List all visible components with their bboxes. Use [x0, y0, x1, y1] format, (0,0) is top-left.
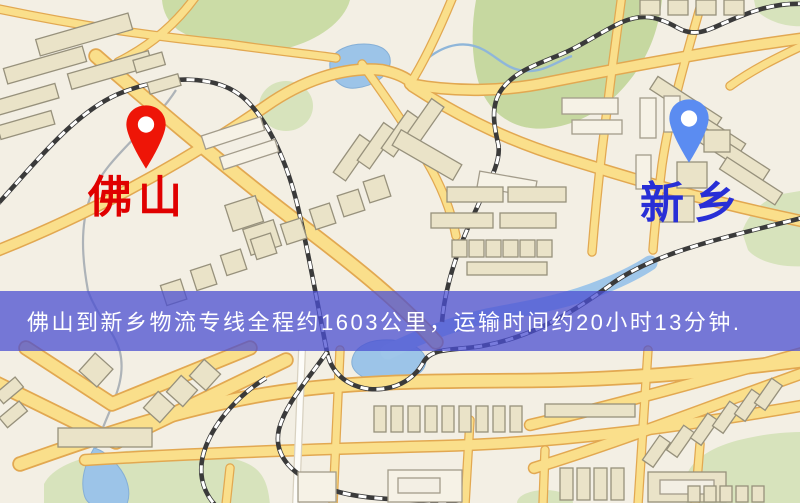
- destination-label: 新乡: [640, 182, 748, 226]
- map-screenshot: 佛山 新乡 佛山到新乡物流专线全程约1603公里，运输时间约20小时13分钟.: [0, 0, 800, 503]
- destination-pin-icon[interactable]: [666, 96, 712, 166]
- origin-pin-icon[interactable]: [123, 102, 169, 172]
- route-info-banner: 佛山到新乡物流专线全程约1603公里，运输时间约20小时13分钟.: [0, 291, 800, 351]
- map-canvas[interactable]: [0, 0, 800, 503]
- pin-hole: [681, 110, 697, 126]
- origin-label: 佛山: [88, 176, 188, 220]
- pin-hole: [138, 116, 154, 132]
- route-info-text: 佛山到新乡物流专线全程约1603公里，运输时间约20小时13分钟.: [0, 305, 742, 337]
